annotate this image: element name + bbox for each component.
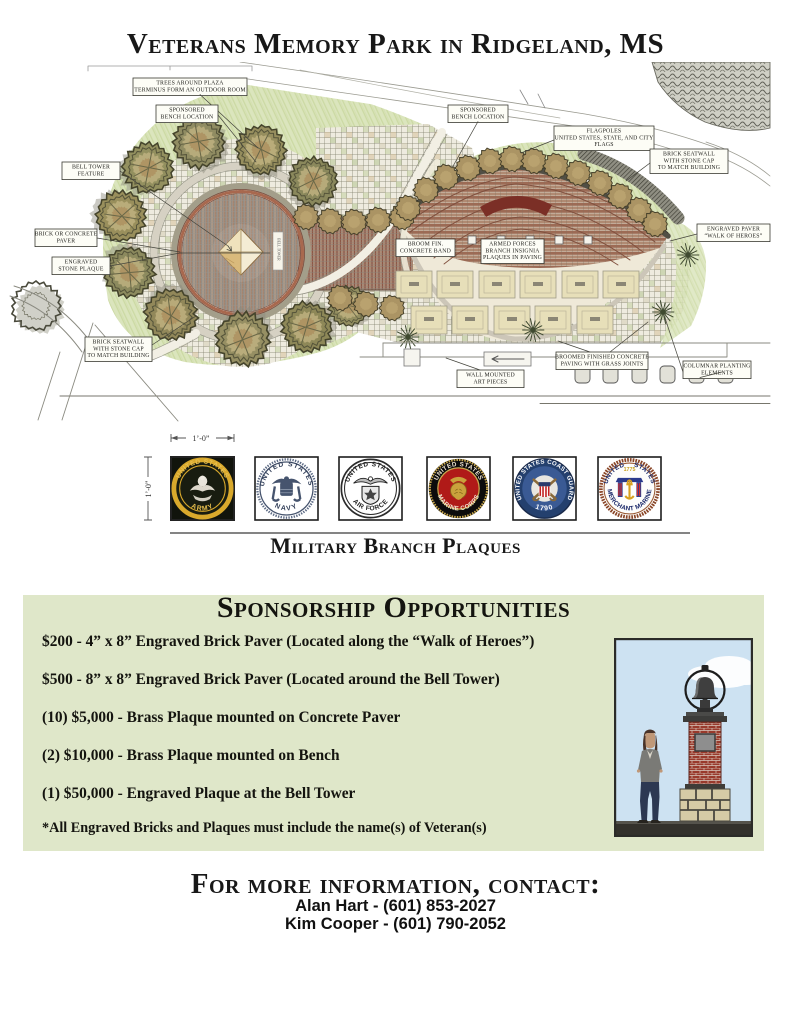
svg-text:ENGRAVED: ENGRAVED — [65, 259, 98, 265]
svg-text:1’-0”: 1’-0” — [144, 480, 153, 497]
svg-text:WALL MOUNTED: WALL MOUNTED — [466, 372, 515, 378]
svg-text:TERMINUS FORM AN OUTDOOR ROOM: TERMINUS FORM AN OUTDOOR ROOM — [134, 87, 245, 93]
svg-text:BROOMED FINISHED CONCRETE: BROOMED FINISHED CONCRETE — [555, 354, 649, 360]
svg-text:WITH STONE CAP: WITH STONE CAP — [93, 346, 144, 352]
svg-text:WITH STONE CAP: WITH STONE CAP — [664, 158, 715, 164]
svg-text:PLAQUES IN PAVING: PLAQUES IN PAVING — [483, 255, 542, 261]
svg-text:COLUMNAR PLANTING: COLUMNAR PLANTING — [683, 363, 750, 369]
svg-text:1’-0”: 1’-0” — [193, 434, 210, 443]
svg-text:ARMED FORCES: ARMED FORCES — [489, 241, 536, 247]
svg-text:FEATURE: FEATURE — [78, 171, 105, 177]
svg-text:“WALK OF HEROES”: “WALK OF HEROES” — [705, 232, 763, 239]
svg-text:SPONSORED: SPONSORED — [169, 107, 205, 113]
svg-text:FLAGPOLES: FLAGPOLES — [587, 128, 622, 134]
svg-text:TO MATCH BUILDING: TO MATCH BUILDING — [87, 353, 149, 359]
svg-text:BENCH LOCATION: BENCH LOCATION — [452, 114, 505, 120]
svg-text:SPONSORED: SPONSORED — [460, 107, 496, 113]
svg-text:STONE PLAQUE: STONE PLAQUE — [58, 266, 104, 272]
svg-text:BRICK SEATWALL: BRICK SEATWALL — [93, 339, 145, 345]
svg-text:PAVING WITH GRASS JOINTS: PAVING WITH GRASS JOINTS — [561, 361, 644, 367]
svg-text:BELL TOWER: BELL TOWER — [72, 164, 110, 170]
svg-text:BRICK OR CONCRETE: BRICK OR CONCRETE — [35, 231, 98, 237]
svg-text:BRANCH INSIGNIA: BRANCH INSIGNIA — [485, 248, 540, 254]
svg-text:TREES AROUND PLAZA: TREES AROUND PLAZA — [156, 80, 224, 86]
svg-text:FLAGS: FLAGS — [594, 142, 613, 148]
svg-text:TO MATCH BUILDING: TO MATCH BUILDING — [658, 165, 720, 171]
svg-text:ENGRAVED PAVER: ENGRAVED PAVER — [707, 226, 760, 232]
svg-text:1775: 1775 — [624, 467, 636, 473]
svg-text:PAVER: PAVER — [57, 238, 76, 244]
svg-text:CONCRETE BAND: CONCRETE BAND — [400, 248, 451, 254]
svg-text:BROOM FIN.: BROOM FIN. — [408, 241, 444, 247]
svg-text:BRICK SEATWALL: BRICK SEATWALL — [663, 151, 715, 157]
svg-text:BENCH LOCATION: BENCH LOCATION — [161, 114, 214, 120]
svg-text:UNITED STATES, STATE, AND CITY: UNITED STATES, STATE, AND CITY — [554, 135, 654, 141]
svg-text:ART PIECES: ART PIECES — [474, 379, 508, 385]
svg-text:BELL TOWER: BELL TOWER — [277, 238, 281, 261]
